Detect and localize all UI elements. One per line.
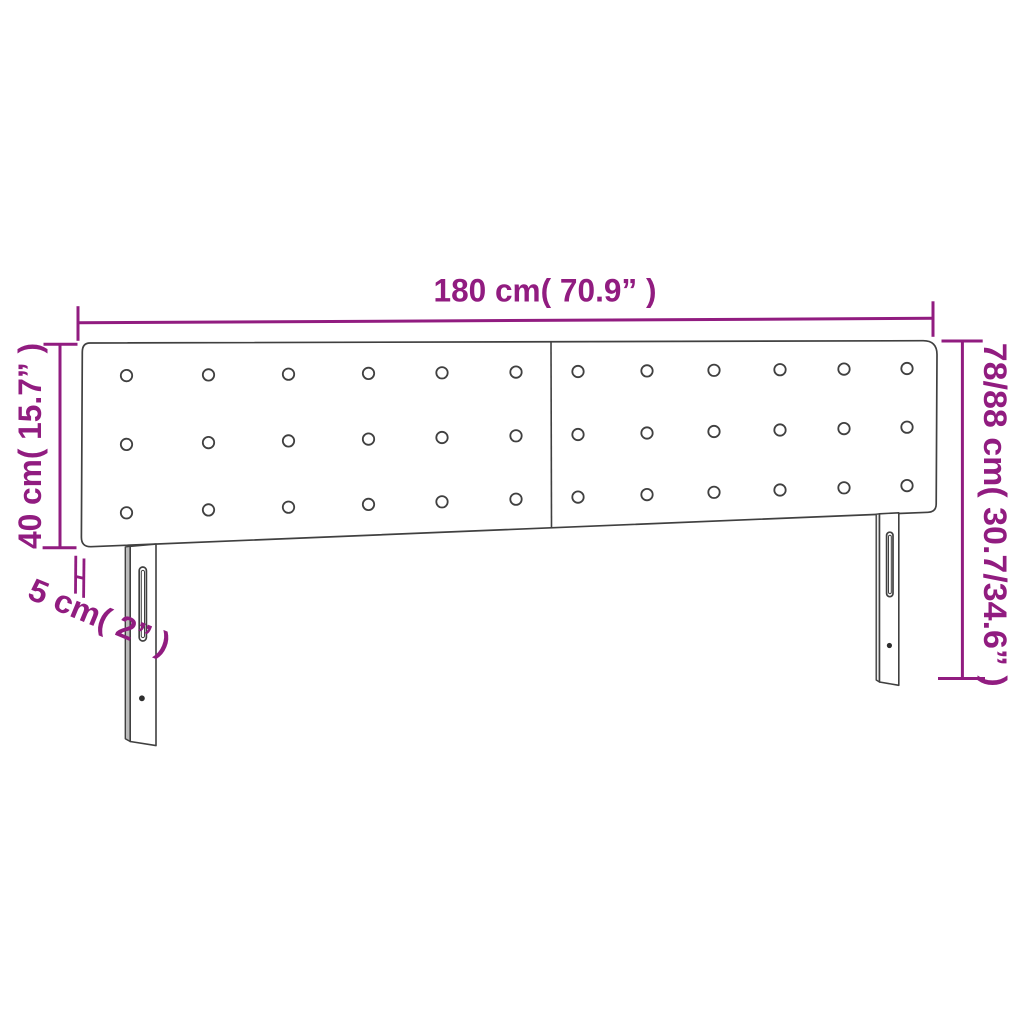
svg-text:40 cm( 15.7” ): 40 cm( 15.7” ): [12, 343, 48, 549]
svg-text:180 cm( 70.9” ): 180 cm( 70.9” ): [434, 273, 657, 309]
svg-text:78/88 cm( 30.7/34.6” ): 78/88 cm( 30.7/34.6” ): [977, 343, 1013, 687]
